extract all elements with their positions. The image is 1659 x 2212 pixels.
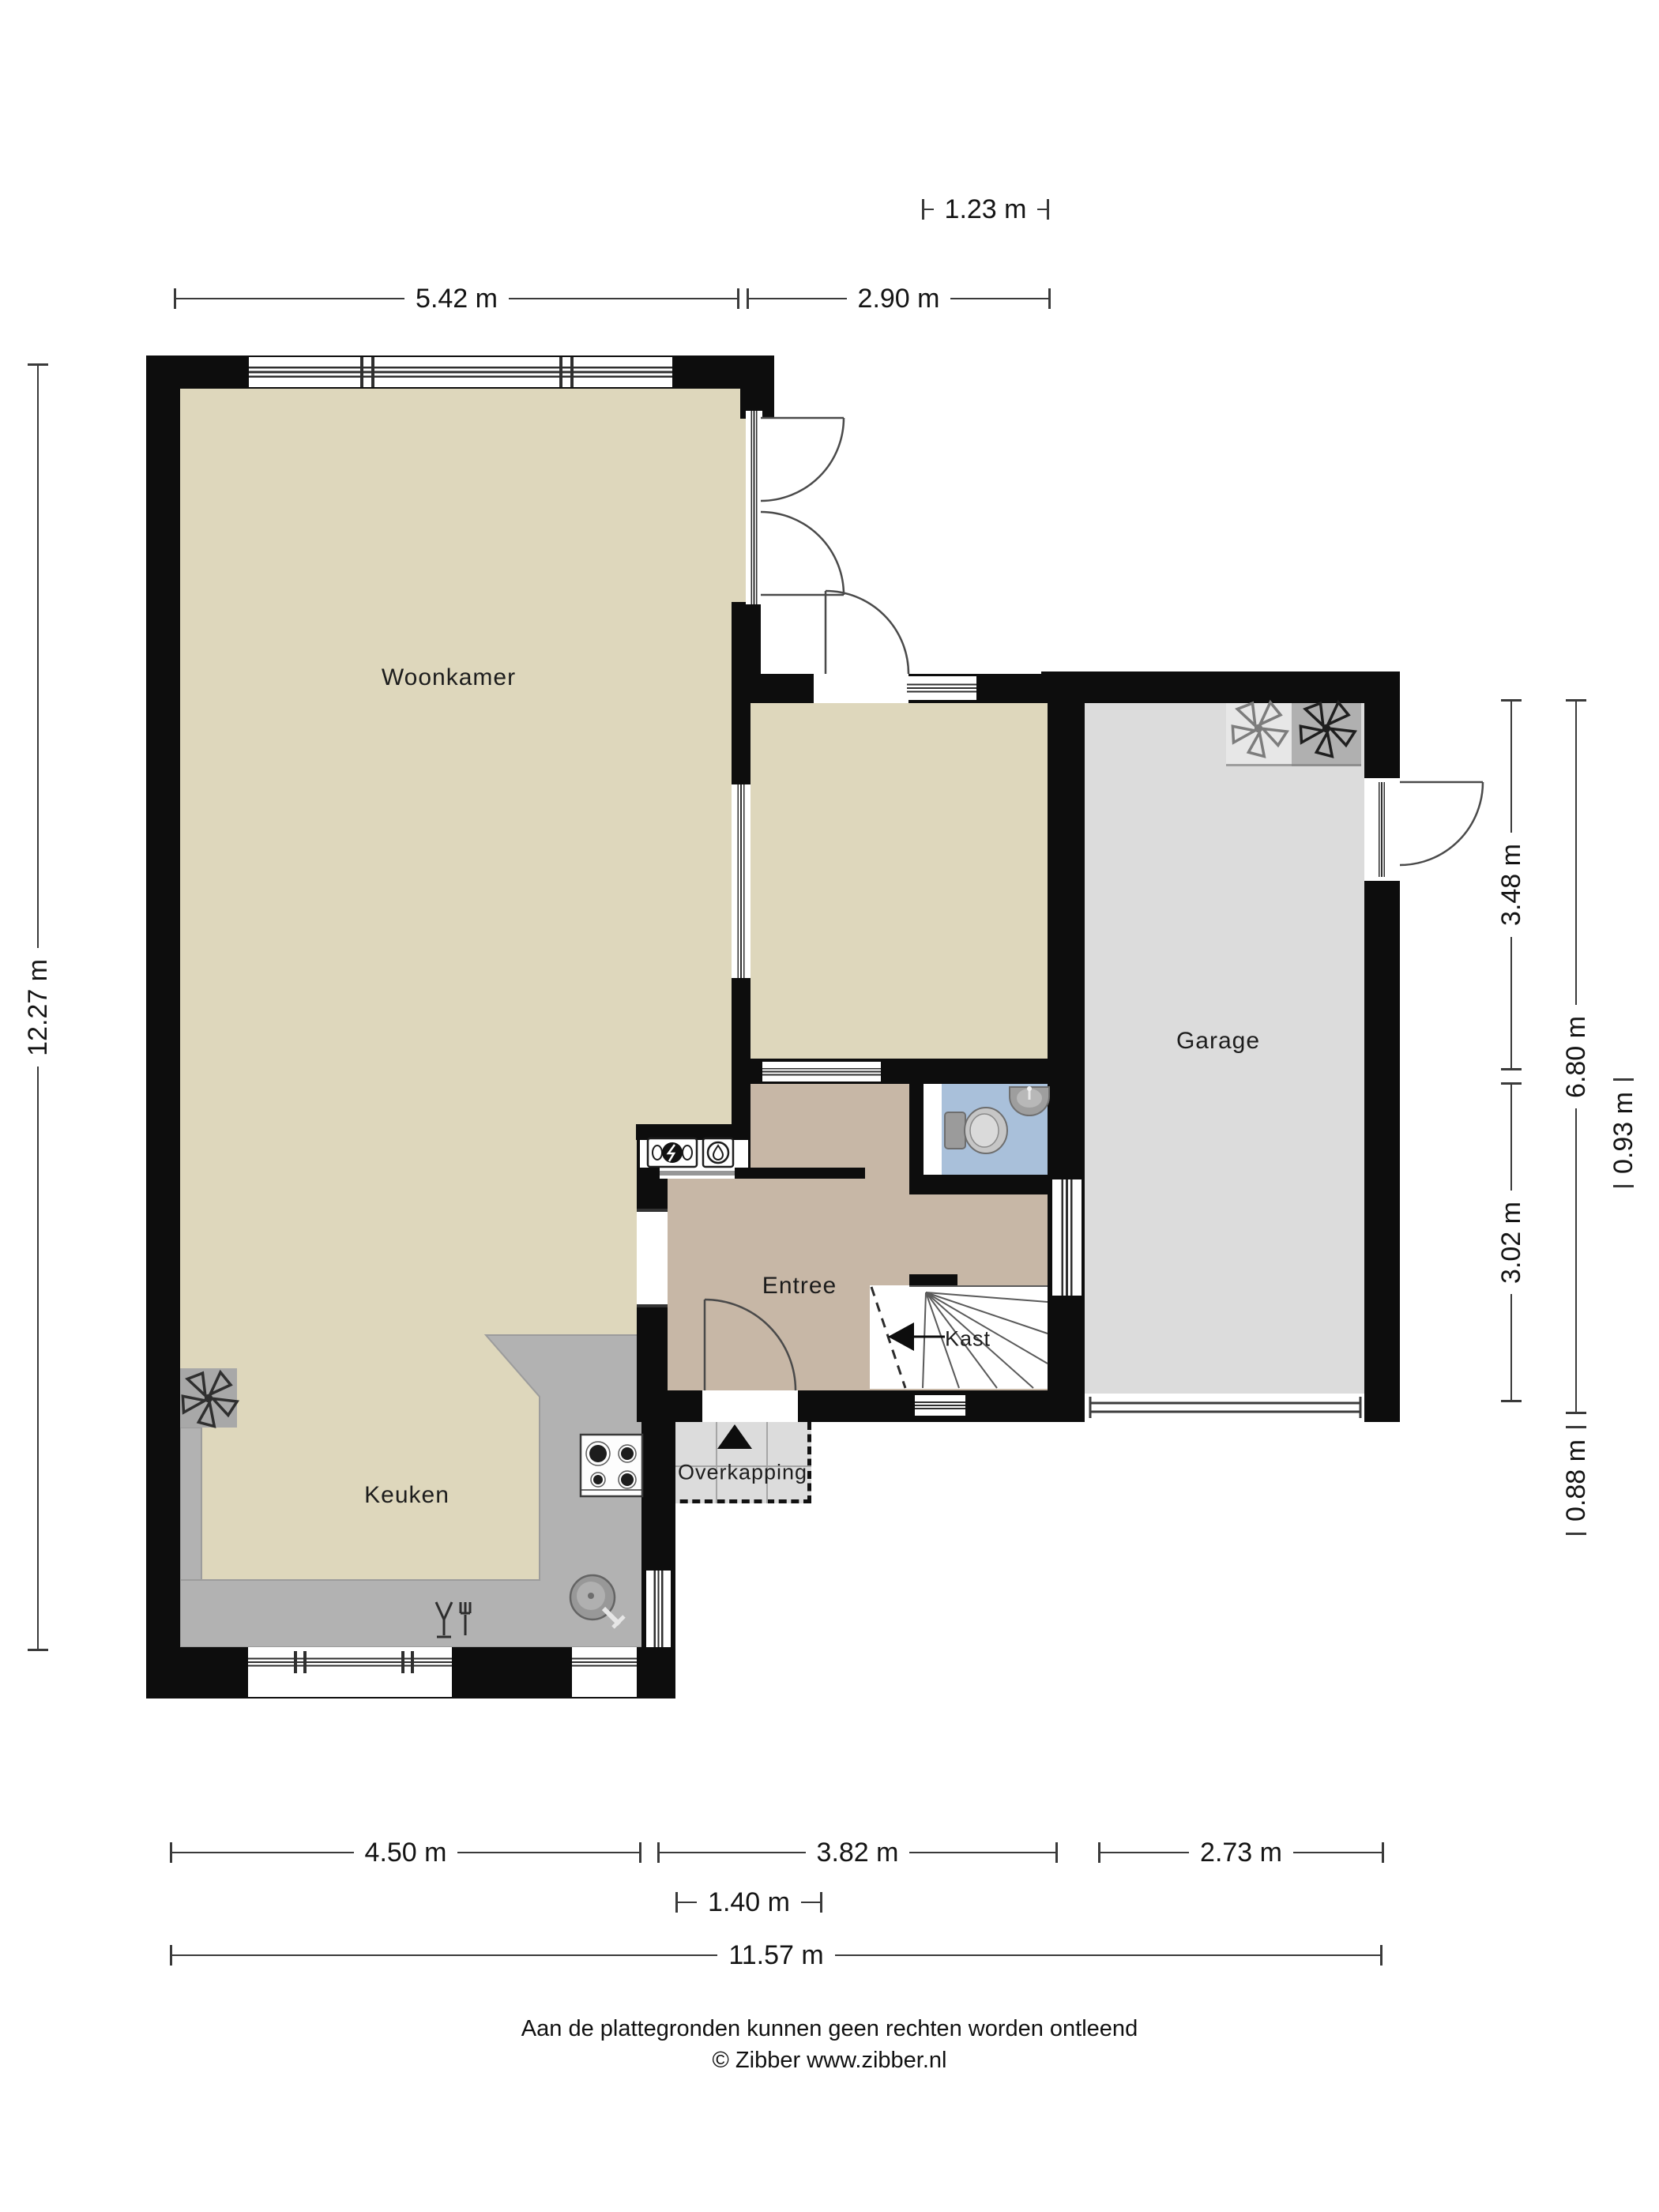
- entrance-arrow-icon: [717, 1424, 752, 1449]
- plan-detail-overlay: [0, 0, 1659, 2212]
- dim-bottom-middle: 3.82 m: [657, 1838, 1058, 1867]
- garage-door-symbol: [1090, 1397, 1360, 1418]
- garage-fan-icon-dark: [1293, 699, 1358, 762]
- sink-icon: [570, 1575, 624, 1627]
- dim-label: 1.40 m: [697, 1887, 801, 1918]
- dim-right-inner-top: 3.48 m: [1497, 699, 1525, 1070]
- kitchen-fan-icon: [175, 1369, 240, 1432]
- hand-basin-icon: [1010, 1086, 1049, 1115]
- dim-right-bottom-small: 0.88 m: [1562, 1426, 1590, 1521]
- french-doors: [761, 418, 844, 595]
- dim-label: 12.27 m: [23, 948, 54, 1067]
- footer-disclaimer: Aan de plattegronden kunnen geen rechten…: [0, 2016, 1659, 2042]
- dim-bottom-door: 1.40 m: [675, 1888, 822, 1917]
- dim-label: 3.02 m: [1496, 1191, 1527, 1295]
- room-label-overkapping: Overkapping: [678, 1461, 807, 1485]
- garage-fan-icon-light: [1225, 699, 1290, 762]
- dim-bottom-right: 2.73 m: [1098, 1838, 1384, 1867]
- dim-top-right: 2.90 m: [747, 284, 1051, 313]
- toilet-icon: [945, 1108, 1007, 1153]
- front-door: [705, 1300, 796, 1390]
- dim-right-small: 0.93 m: [1609, 1078, 1638, 1181]
- dim-right-inner-bottom: 3.02 m: [1497, 1082, 1525, 1402]
- dim-top-small: 1.23 m: [922, 195, 1049, 224]
- electric-meter-icon: [648, 1138, 697, 1167]
- dim-label: 3.82 m: [806, 1838, 910, 1868]
- room-label-entree: Entree: [762, 1273, 837, 1300]
- dim-label: 2.73 m: [1189, 1838, 1293, 1868]
- dim-top-left: 5.42 m: [174, 284, 739, 313]
- room-label-keuken: Keuken: [364, 1482, 450, 1509]
- water-meter-icon: [703, 1138, 733, 1167]
- dim-label: 4.50 m: [354, 1838, 458, 1868]
- dim-bottom-left: 4.50 m: [170, 1838, 641, 1867]
- dim-label: 11.57 m: [717, 1940, 834, 1971]
- dim-label: 0.88 m: [1561, 1428, 1592, 1533]
- dishwasher-icon: [436, 1602, 470, 1637]
- footer-credit: © Zibber www.zibber.nl: [0, 2048, 1659, 2074]
- porch-door: [826, 591, 908, 674]
- dim-label: 2.90 m: [847, 284, 951, 314]
- dim-left-total: 12.27 m: [24, 363, 52, 1651]
- dim-label: 1.23 m: [934, 194, 1038, 225]
- room-label-kast: Kast: [945, 1327, 991, 1352]
- dim-right-outer: 6.80 m: [1562, 699, 1590, 1414]
- dim-label: 6.80 m: [1561, 1005, 1592, 1109]
- dim-label: 3.48 m: [1496, 833, 1527, 937]
- garage-side-door: [1400, 782, 1483, 865]
- dim-bottom-total: 11.57 m: [170, 1941, 1382, 1969]
- dim-label: 5.42 m: [404, 284, 509, 314]
- dim-label: 0.93 m: [1608, 1081, 1639, 1185]
- room-label-garage: Garage: [1176, 1028, 1260, 1055]
- room-label-woonkamer: Woonkamer: [382, 664, 516, 691]
- stove-icon: [581, 1435, 642, 1496]
